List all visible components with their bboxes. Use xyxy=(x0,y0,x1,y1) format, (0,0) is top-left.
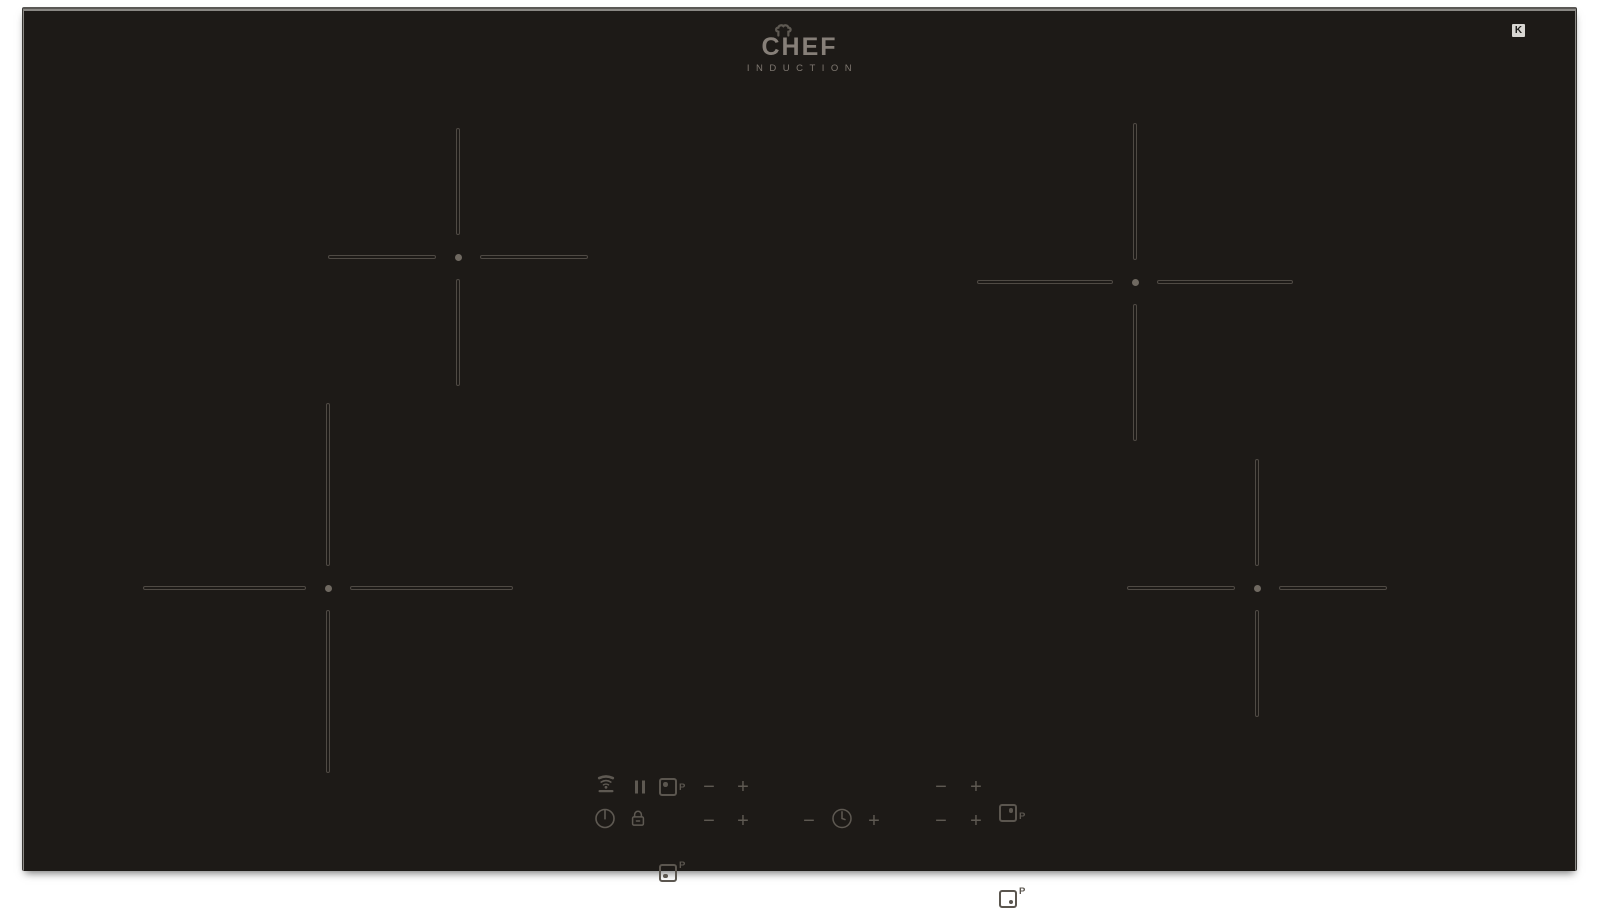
pot-position-dot xyxy=(663,874,668,879)
brand-tagline: INDUCTION xyxy=(741,64,858,74)
front-right-minus-button[interactable]: − xyxy=(935,811,947,831)
pot-icon xyxy=(999,890,1017,908)
zone-center-dot xyxy=(455,254,462,261)
brand-logo: CHEF INDUCTION xyxy=(741,23,858,74)
zone-cross-arm xyxy=(456,279,460,386)
power-button[interactable] xyxy=(594,807,617,835)
timer-plus-button[interactable]: + xyxy=(868,811,880,831)
zone-cross-arm xyxy=(1133,304,1137,441)
zone-select-rear-right-button[interactable]: P xyxy=(995,800,1031,826)
zone-cross-arm xyxy=(326,403,330,566)
zone-select-rear-left-button[interactable]: P xyxy=(655,774,691,800)
power-boost-label: P xyxy=(679,861,685,871)
lock-icon xyxy=(627,808,649,835)
zone-center-dot xyxy=(1254,585,1261,592)
zone-cross-arm xyxy=(1279,586,1387,590)
pot-position-dot xyxy=(663,782,668,787)
front-left-minus-button[interactable]: − xyxy=(703,811,715,831)
chef-hat-icon xyxy=(773,23,797,36)
power-boost-label: P xyxy=(679,783,685,793)
cooktop-surface: CHEF INDUCTION K xyxy=(22,7,1577,871)
zone-cross-arm xyxy=(480,255,588,259)
zone-center-dot xyxy=(1132,279,1139,286)
pot-icon xyxy=(659,778,677,796)
rear-left-minus-button[interactable]: − xyxy=(703,777,715,797)
front-left-plus-button[interactable]: + xyxy=(737,811,749,831)
plus-icon: + xyxy=(737,811,749,831)
power-boost-label: P xyxy=(1019,887,1025,897)
power-boost-label: P xyxy=(1019,812,1025,822)
minus-icon: − xyxy=(803,811,815,831)
pot-icon xyxy=(999,804,1017,822)
pause-button[interactable] xyxy=(635,781,645,794)
minus-icon: − xyxy=(935,811,947,831)
zone-cross-arm xyxy=(143,586,306,590)
plus-icon: + xyxy=(737,777,749,797)
pot-position-dot xyxy=(1009,900,1014,905)
lock-button[interactable] xyxy=(627,808,649,835)
zone-cross-arm xyxy=(1255,459,1259,566)
minus-icon: − xyxy=(703,811,715,831)
hob2hood-button[interactable] xyxy=(594,773,618,802)
zone-select-front-right-button[interactable]: P xyxy=(995,886,1031,912)
minus-icon: − xyxy=(703,777,715,797)
zone-center-dot xyxy=(325,585,332,592)
zone-cross-arm xyxy=(1133,123,1137,260)
minus-icon: − xyxy=(935,777,947,797)
zone-cross-arm xyxy=(1127,586,1235,590)
brand-name: CHEF xyxy=(761,35,837,60)
corner-badge: K xyxy=(1512,24,1525,37)
timer-minus-button[interactable]: − xyxy=(803,811,815,831)
zone-cross-arm xyxy=(456,128,460,235)
pause-icon xyxy=(635,781,645,794)
timer-clock-icon xyxy=(831,807,854,835)
rear-right-minus-button[interactable]: − xyxy=(935,777,947,797)
zone-cross-arm xyxy=(326,610,330,773)
hob2hood-icon xyxy=(594,773,618,802)
rear-left-plus-button[interactable]: + xyxy=(737,777,749,797)
zone-select-front-left-button[interactable]: P xyxy=(655,860,691,886)
zone-cross-arm xyxy=(1255,610,1259,717)
pot-icon xyxy=(659,864,677,882)
rear-right-plus-button[interactable]: + xyxy=(970,777,982,797)
zone-cross-arm xyxy=(350,586,513,590)
zone-cross-arm xyxy=(1157,280,1293,284)
plus-icon: + xyxy=(868,811,880,831)
timer-button[interactable] xyxy=(831,807,854,835)
power-icon xyxy=(594,807,617,835)
front-right-plus-button[interactable]: + xyxy=(970,811,982,831)
zone-cross-arm xyxy=(328,255,436,259)
plus-icon: + xyxy=(970,777,982,797)
plus-icon: + xyxy=(970,811,982,831)
pot-position-dot xyxy=(1009,808,1014,813)
zone-cross-arm xyxy=(977,280,1113,284)
